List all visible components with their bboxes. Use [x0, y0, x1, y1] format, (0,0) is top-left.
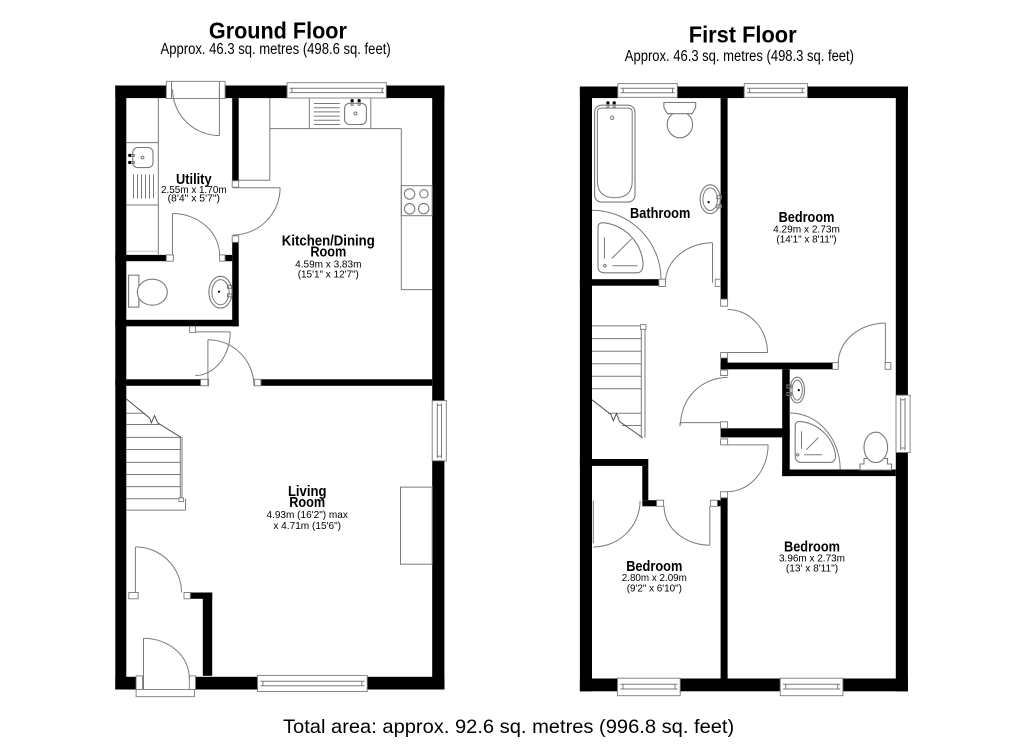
svg-text:x 4.71m (15'6"): x 4.71m (15'6") — [273, 521, 341, 532]
svg-text:(14'1" x 8'11"): (14'1" x 8'11") — [776, 234, 836, 245]
svg-text:Approx. 46.3 sq. metres (498.6: Approx. 46.3 sq. metres (498.6 sq. feet) — [161, 41, 391, 58]
svg-text:First Floor: First Floor — [689, 21, 797, 47]
svg-text:(9'2" x 6'10"): (9'2" x 6'10") — [627, 583, 682, 594]
svg-text:(15'1" x 12'7"): (15'1" x 12'7") — [298, 269, 359, 280]
svg-text:4.93m (16'2") max: 4.93m (16'2") max — [266, 510, 348, 521]
svg-text:Total area: approx. 92.6 sq. m: Total area: approx. 92.6 sq. metres (996… — [283, 716, 734, 738]
svg-text:Bathroom: Bathroom — [630, 206, 690, 222]
svg-text:Room: Room — [310, 245, 346, 261]
svg-text:(8'4" x 5'7"): (8'4" x 5'7") — [168, 194, 220, 205]
svg-text:(13' x 8'11"): (13' x 8'11") — [786, 563, 838, 574]
svg-text:Approx. 46.3 sq. metres (498.3: Approx. 46.3 sq. metres (498.3 sq. feet) — [625, 48, 854, 65]
svg-text:Room: Room — [289, 495, 325, 511]
svg-text:Bedroom: Bedroom — [779, 210, 835, 226]
svg-text:Ground Floor: Ground Floor — [209, 17, 347, 43]
